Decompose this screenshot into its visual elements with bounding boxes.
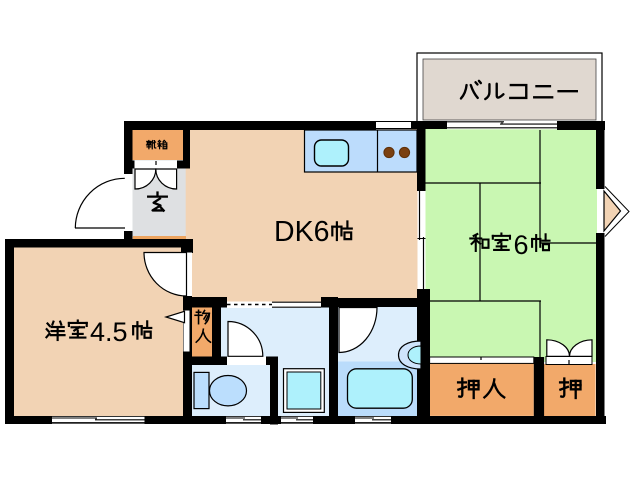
svg-text:4.5: 4.5 bbox=[90, 317, 128, 347]
svg-text:6: 6 bbox=[514, 230, 529, 260]
svg-text:DK6: DK6 bbox=[274, 216, 329, 248]
